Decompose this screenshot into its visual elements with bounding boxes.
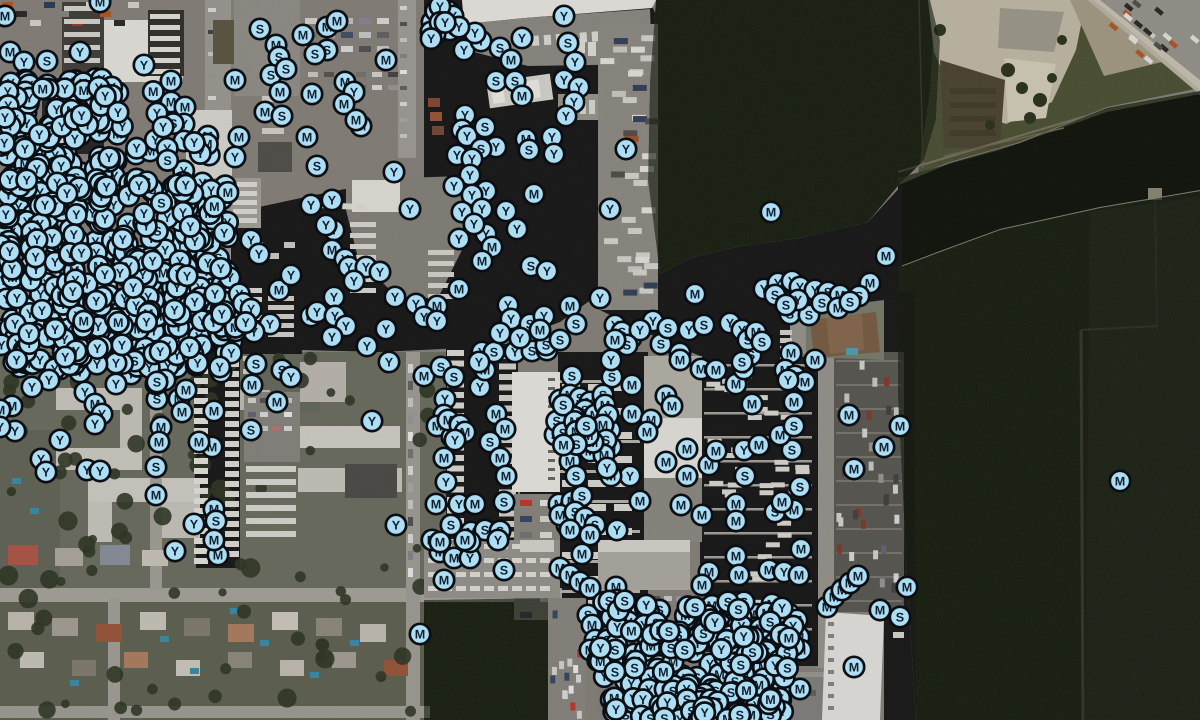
svg-text:Y: Y — [475, 356, 484, 370]
svg-text:Y: Y — [330, 291, 339, 305]
svg-text:M: M — [209, 200, 220, 214]
svg-text:M: M — [784, 631, 795, 645]
svg-text:M: M — [682, 443, 693, 457]
svg-text:S: S — [782, 299, 790, 313]
svg-text:S: S — [153, 376, 161, 390]
svg-text:S: S — [783, 662, 791, 676]
svg-text:S: S — [818, 297, 826, 311]
svg-text:Y: Y — [543, 265, 552, 279]
svg-text:Y: Y — [6, 245, 15, 259]
svg-text:Y: Y — [21, 143, 30, 157]
svg-text:Y: Y — [562, 110, 571, 124]
svg-text:M: M — [585, 529, 596, 543]
svg-text:S: S — [611, 644, 619, 658]
svg-text:S: S — [559, 399, 567, 413]
svg-text:Y: Y — [101, 90, 110, 104]
svg-text:M: M — [209, 405, 220, 419]
svg-text:S: S — [500, 564, 508, 578]
svg-text:Y: Y — [181, 179, 190, 193]
svg-text:Y: Y — [51, 323, 60, 337]
svg-text:M: M — [585, 582, 596, 596]
svg-text:M: M — [800, 376, 811, 390]
svg-text:Y: Y — [626, 470, 635, 484]
svg-text:Y: Y — [96, 465, 105, 479]
svg-text:Y: Y — [700, 706, 709, 720]
svg-text:Y: Y — [101, 268, 110, 282]
svg-text:M: M — [78, 315, 89, 329]
svg-text:Y: Y — [33, 233, 42, 247]
svg-text:Y: Y — [186, 220, 195, 234]
svg-text:Y: Y — [560, 10, 569, 24]
svg-text:Y: Y — [612, 703, 621, 717]
svg-text:Y: Y — [382, 323, 391, 337]
svg-text:Y: Y — [63, 187, 72, 201]
svg-text:M: M — [177, 406, 188, 420]
svg-text:S: S — [896, 611, 904, 625]
svg-text:Y: Y — [368, 415, 377, 429]
svg-text:Y: Y — [112, 378, 121, 392]
svg-text:S: S — [267, 69, 275, 83]
svg-text:Y: Y — [322, 219, 331, 233]
svg-text:M: M — [274, 284, 285, 298]
svg-text:Y: Y — [72, 208, 81, 222]
svg-text:M: M — [439, 574, 450, 588]
svg-text:S: S — [790, 420, 798, 434]
svg-text:S: S — [660, 712, 668, 720]
svg-text:Y: Y — [114, 106, 123, 120]
svg-text:Y: Y — [101, 213, 110, 227]
svg-text:M: M — [796, 543, 807, 557]
svg-text:Y: Y — [596, 642, 605, 656]
svg-text:S: S — [43, 55, 51, 69]
svg-text:Y: Y — [328, 194, 337, 208]
svg-text:S: S — [481, 121, 489, 135]
svg-text:Y: Y — [307, 199, 316, 213]
svg-text:S: S — [490, 346, 498, 360]
svg-text:Y: Y — [105, 151, 114, 165]
svg-text:Y: Y — [502, 205, 511, 219]
svg-text:Y: Y — [11, 425, 20, 439]
svg-text:Y: Y — [38, 304, 47, 318]
svg-text:S: S — [700, 319, 708, 333]
svg-text:S: S — [664, 322, 672, 336]
svg-text:Y: Y — [56, 434, 65, 448]
svg-text:S: S — [311, 48, 319, 62]
svg-text:Y: Y — [778, 602, 787, 616]
svg-text:Y: Y — [41, 199, 50, 213]
svg-text:S: S — [620, 594, 628, 608]
svg-text:M: M — [435, 536, 446, 550]
svg-text:M: M — [298, 29, 309, 43]
svg-text:Y: Y — [548, 131, 557, 145]
svg-text:Y: Y — [406, 203, 415, 217]
svg-text:Y: Y — [596, 292, 605, 306]
svg-text:Y: Y — [183, 269, 192, 283]
svg-text:S: S — [736, 708, 744, 720]
svg-text:M: M — [844, 409, 855, 423]
svg-text:Y: Y — [156, 345, 165, 359]
svg-text:Y: Y — [471, 27, 480, 41]
svg-text:Y: Y — [363, 340, 372, 354]
svg-text:M: M — [661, 456, 672, 470]
svg-text:Y: Y — [61, 82, 70, 96]
svg-text:M: M — [565, 524, 576, 538]
svg-text:S: S — [758, 336, 766, 350]
svg-text:S: S — [630, 662, 638, 676]
svg-text:M: M — [676, 499, 687, 513]
svg-text:M: M — [682, 470, 693, 484]
svg-text:Y: Y — [550, 148, 559, 162]
svg-text:Y: Y — [603, 462, 612, 476]
svg-text:Y: Y — [112, 357, 121, 371]
svg-text:S: S — [556, 334, 564, 348]
svg-text:M: M — [697, 509, 708, 523]
svg-text:M: M — [449, 552, 460, 566]
svg-text:Y: Y — [350, 275, 359, 289]
svg-text:M: M — [627, 408, 638, 422]
svg-text:M: M — [501, 470, 512, 484]
svg-text:Y: Y — [92, 295, 101, 309]
svg-text:M: M — [902, 581, 913, 595]
svg-text:Y: Y — [28, 381, 37, 395]
svg-text:Y: Y — [170, 304, 179, 318]
svg-text:M: M — [500, 423, 511, 437]
svg-text:Y: Y — [507, 313, 516, 327]
svg-text:M: M — [180, 101, 191, 115]
svg-text:Y: Y — [266, 318, 275, 332]
svg-text:M: M — [415, 628, 426, 642]
svg-text:M: M — [881, 250, 892, 264]
svg-text:M: M — [849, 463, 860, 477]
svg-text:Y: Y — [71, 132, 80, 146]
svg-text:M: M — [95, 0, 106, 10]
svg-text:M: M — [667, 400, 678, 414]
svg-text:M: M — [786, 347, 797, 361]
svg-text:Y: Y — [606, 203, 615, 217]
svg-text:M: M — [339, 98, 350, 112]
svg-text:Y: Y — [171, 545, 180, 559]
svg-text:Y: Y — [77, 109, 86, 123]
svg-text:M: M — [154, 436, 165, 450]
svg-text:Y: Y — [159, 121, 168, 135]
svg-text:M: M — [495, 452, 506, 466]
svg-text:Y: Y — [142, 315, 151, 329]
svg-text:Y: Y — [218, 308, 227, 322]
svg-text:M: M — [148, 85, 159, 99]
svg-text:Y: Y — [450, 180, 459, 194]
svg-text:M: M — [419, 370, 430, 384]
svg-text:Y: Y — [470, 218, 479, 232]
svg-text:Y: Y — [118, 233, 127, 247]
svg-text:M: M — [741, 684, 752, 698]
svg-text:Y: Y — [391, 291, 400, 305]
svg-text:M: M — [731, 498, 742, 512]
svg-text:Y: Y — [42, 466, 51, 480]
svg-text:M: M — [697, 579, 708, 593]
svg-text:M: M — [765, 693, 776, 707]
svg-text:Y: Y — [518, 32, 527, 46]
svg-text:M: M — [794, 569, 805, 583]
svg-text:M: M — [0, 10, 10, 24]
svg-text:M: M — [302, 131, 313, 145]
svg-text:M: M — [506, 54, 517, 68]
svg-text:Y: Y — [0, 421, 5, 435]
svg-text:Y: Y — [0, 338, 6, 352]
svg-text:Y: Y — [739, 630, 748, 644]
svg-text:S: S — [212, 515, 220, 529]
svg-text:M: M — [711, 445, 722, 459]
svg-text:Y: Y — [13, 291, 22, 305]
svg-text:Y: Y — [1, 111, 10, 125]
svg-text:Y: Y — [70, 228, 79, 242]
svg-text:Y: Y — [185, 341, 194, 355]
svg-text:Y: Y — [116, 267, 125, 281]
svg-text:Y: Y — [45, 374, 54, 388]
svg-text:M: M — [38, 82, 49, 96]
svg-text:Y: Y — [711, 616, 720, 630]
svg-text:Y: Y — [148, 255, 157, 269]
svg-text:S: S — [572, 318, 580, 332]
svg-text:M: M — [151, 489, 162, 503]
svg-text:M: M — [529, 188, 540, 202]
svg-text:Y: Y — [255, 248, 264, 262]
svg-text:Y: Y — [466, 169, 475, 183]
svg-text:Y: Y — [216, 262, 225, 276]
svg-text:M: M — [734, 569, 745, 583]
svg-text:Y: Y — [385, 356, 394, 370]
svg-text:S: S — [282, 63, 290, 77]
svg-text:M: M — [454, 283, 465, 297]
svg-text:Y: Y — [140, 59, 149, 73]
svg-text:M: M — [209, 534, 220, 548]
svg-text:M: M — [879, 441, 890, 455]
svg-text:M: M — [577, 548, 588, 562]
svg-text:S: S — [805, 309, 813, 323]
svg-text:Y: Y — [76, 46, 85, 60]
svg-text:Y: Y — [642, 599, 651, 613]
svg-text:S: S — [527, 260, 535, 274]
svg-text:M: M — [895, 420, 906, 434]
svg-text:S: S — [572, 470, 580, 484]
svg-text:Y: Y — [455, 498, 464, 512]
svg-text:M: M — [747, 398, 758, 412]
svg-text:M: M — [675, 354, 686, 368]
svg-text:Y: Y — [516, 332, 525, 346]
svg-text:M: M — [627, 379, 638, 393]
svg-text:Y: Y — [613, 524, 622, 538]
svg-text:S: S — [313, 160, 321, 174]
svg-text:Y: Y — [376, 266, 385, 280]
svg-text:S: S — [680, 644, 688, 658]
svg-text:Y: Y — [215, 361, 224, 375]
svg-text:Y: Y — [25, 327, 34, 341]
svg-text:S: S — [163, 154, 171, 168]
svg-text:S: S — [737, 658, 745, 672]
svg-text:M: M — [234, 131, 245, 145]
svg-text:M: M — [0, 404, 5, 418]
svg-text:Y: Y — [455, 233, 464, 247]
svg-text:Y: Y — [636, 324, 645, 338]
svg-text:S: S — [247, 424, 255, 438]
svg-text:M: M — [166, 75, 177, 89]
svg-text:Y: Y — [36, 353, 45, 367]
svg-text:Y: Y — [607, 354, 616, 368]
svg-text:S: S — [256, 23, 264, 37]
svg-text:M: M — [332, 15, 343, 29]
svg-text:S: S — [741, 470, 749, 484]
svg-text:Y: Y — [0, 136, 9, 150]
svg-text:M: M — [690, 288, 701, 302]
svg-text:M: M — [853, 570, 864, 584]
svg-text:Y: Y — [94, 320, 103, 334]
svg-text:Y: Y — [48, 231, 57, 245]
svg-text:Y: Y — [190, 518, 199, 532]
svg-text:Y: Y — [313, 306, 322, 320]
svg-text:S: S — [568, 370, 576, 384]
svg-text:Y: Y — [190, 296, 199, 310]
svg-text:Y: Y — [451, 434, 460, 448]
svg-text:Y: Y — [93, 342, 102, 356]
svg-text:M: M — [223, 186, 234, 200]
svg-text:S: S — [608, 371, 616, 385]
svg-text:M: M — [558, 439, 569, 453]
svg-text:Y: Y — [2, 208, 11, 222]
svg-text:Y: Y — [287, 269, 296, 283]
svg-text:M: M — [635, 495, 646, 509]
svg-text:S: S — [486, 436, 494, 450]
svg-text:M: M — [194, 436, 205, 450]
svg-text:M: M — [789, 396, 800, 410]
svg-text:Y: Y — [476, 381, 485, 395]
svg-text:Y: Y — [492, 141, 501, 155]
svg-text:Y: Y — [427, 32, 436, 46]
svg-text:S: S — [788, 444, 796, 458]
svg-text:Y: Y — [241, 316, 250, 330]
svg-text:Y: Y — [571, 56, 580, 70]
svg-text:Y: Y — [31, 250, 40, 264]
svg-text:S: S — [447, 519, 455, 533]
svg-text:Y: Y — [460, 44, 469, 58]
svg-text:Y: Y — [442, 476, 451, 490]
svg-text:Y: Y — [390, 166, 399, 180]
svg-text:M: M — [230, 74, 241, 88]
svg-text:M: M — [307, 88, 318, 102]
svg-text:S: S — [691, 601, 699, 615]
svg-text:Y: Y — [784, 374, 793, 388]
svg-text:Y: Y — [61, 351, 70, 365]
svg-text:M: M — [626, 625, 637, 639]
svg-text:Y: Y — [193, 357, 202, 371]
svg-text:M: M — [439, 452, 450, 466]
svg-text:M: M — [777, 496, 788, 510]
svg-text:M: M — [610, 334, 621, 348]
svg-text:M: M — [795, 683, 806, 697]
svg-text:M: M — [477, 255, 488, 269]
svg-text:S: S — [450, 371, 458, 385]
svg-text:Y: Y — [433, 315, 442, 329]
svg-text:S: S — [252, 358, 260, 372]
svg-text:M: M — [275, 86, 286, 100]
svg-text:Y: Y — [6, 173, 15, 187]
svg-text:S: S — [492, 75, 500, 89]
svg-text:M: M — [766, 206, 777, 220]
svg-text:Y: Y — [118, 338, 127, 352]
svg-text:Y: Y — [622, 143, 631, 157]
svg-text:S: S — [500, 496, 508, 510]
svg-text:S: S — [796, 481, 804, 495]
svg-text:Y: Y — [91, 418, 100, 432]
svg-text:Y: Y — [129, 281, 138, 295]
svg-text:M: M — [1115, 475, 1126, 489]
svg-text:M: M — [381, 54, 392, 68]
svg-text:M: M — [113, 316, 124, 330]
svg-text:S: S — [611, 665, 619, 679]
svg-text:Y: Y — [132, 142, 141, 156]
svg-text:M: M — [849, 661, 860, 675]
svg-text:Y: Y — [8, 263, 17, 277]
svg-text:S: S — [278, 110, 286, 124]
svg-text:M: M — [470, 498, 481, 512]
svg-text:Y: Y — [190, 136, 199, 150]
svg-text:Y: Y — [231, 151, 240, 165]
svg-text:M: M — [642, 426, 653, 440]
svg-text:M: M — [711, 364, 722, 378]
svg-text:M: M — [535, 324, 546, 338]
svg-text:Y: Y — [35, 128, 44, 142]
svg-text:Y: Y — [342, 320, 351, 334]
svg-text:Y: Y — [140, 207, 149, 221]
svg-text:Y: Y — [287, 371, 296, 385]
svg-text:Y: Y — [102, 180, 111, 194]
svg-text:S: S — [657, 338, 665, 352]
svg-text:S: S — [157, 196, 165, 210]
svg-text:Y: Y — [68, 285, 77, 299]
svg-text:Y: Y — [328, 331, 337, 345]
svg-text:Y: Y — [494, 534, 503, 548]
svg-text:S: S — [582, 420, 590, 434]
svg-text:S: S — [564, 37, 572, 51]
svg-text:Y: Y — [20, 56, 29, 70]
svg-text:Y: Y — [220, 226, 229, 240]
svg-text:Y: Y — [77, 247, 86, 261]
svg-text:S: S — [734, 603, 742, 617]
svg-text:Y: Y — [685, 324, 694, 338]
svg-text:M: M — [460, 534, 471, 548]
svg-text:Y: Y — [12, 353, 21, 367]
svg-text:Y: Y — [740, 444, 749, 458]
svg-text:M: M — [810, 354, 821, 368]
svg-text:Y: Y — [22, 174, 31, 188]
svg-text:S: S — [738, 356, 746, 370]
svg-text:M: M — [260, 106, 271, 120]
svg-text:S: S — [152, 461, 160, 475]
svg-text:Y: Y — [227, 347, 236, 361]
svg-text:Y: Y — [496, 327, 505, 341]
svg-text:Y: Y — [717, 643, 726, 657]
svg-text:Y: Y — [135, 179, 144, 193]
svg-text:S: S — [525, 144, 533, 158]
svg-text:M: M — [875, 604, 886, 618]
svg-text:M: M — [431, 498, 442, 512]
svg-text:M: M — [658, 665, 669, 679]
svg-text:M: M — [754, 439, 765, 453]
svg-text:Y: Y — [466, 552, 475, 566]
svg-text:M: M — [272, 396, 283, 410]
svg-text:Y: Y — [560, 74, 569, 88]
svg-text:Y: Y — [513, 223, 522, 237]
svg-text:Y: Y — [453, 149, 462, 163]
svg-text:Y: Y — [780, 566, 789, 580]
